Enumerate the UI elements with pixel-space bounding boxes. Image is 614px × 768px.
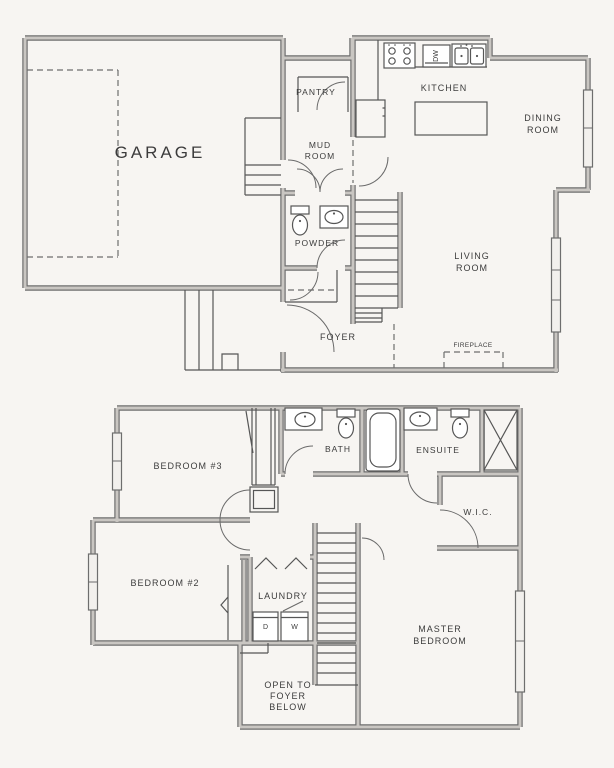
bedroom3-label: BEDROOM #3 bbox=[153, 461, 222, 471]
living-room-label-line2: ROOM bbox=[456, 263, 488, 273]
ensuite-fixtures bbox=[404, 408, 517, 470]
bedroom2-door-arc bbox=[220, 520, 250, 550]
mud-room-label-line1: MUD bbox=[309, 140, 331, 150]
master-bedroom-label-line1: MASTER bbox=[418, 624, 462, 634]
wic-label: W.I.C. bbox=[463, 507, 492, 517]
dishwasher-label: DW bbox=[433, 50, 440, 62]
linen-closet bbox=[250, 487, 278, 512]
floor-plan-canvas: GARAGE PANTRY KITCHEN DINING ROOM MUD RO… bbox=[0, 0, 614, 768]
ensuite-toilet-icon bbox=[451, 409, 469, 417]
pantry-label: PANTRY bbox=[296, 87, 336, 97]
open-to-foyer-label-line3: BELOW bbox=[269, 702, 307, 712]
foyer-closet-door-arc bbox=[290, 272, 318, 300]
bedroom3-door-arc bbox=[220, 490, 250, 520]
powder-toilet-icon bbox=[291, 206, 309, 214]
powder-sink-icon bbox=[320, 206, 348, 228]
open-to-foyer-label-line1: OPEN TO bbox=[264, 680, 311, 690]
bath-label: BATH bbox=[325, 444, 351, 454]
main-staircase-treads bbox=[355, 200, 398, 322]
refrigerator-icon bbox=[356, 100, 385, 137]
foyer-closet-walls bbox=[285, 270, 337, 302]
master-bedroom-label-line2: BEDROOM bbox=[413, 636, 467, 646]
kitchen-hall-door-arc bbox=[359, 157, 388, 186]
kitchen-label: KITCHEN bbox=[421, 83, 468, 93]
living-room-label-line1: LIVING bbox=[454, 251, 490, 261]
front-porch-steps bbox=[185, 290, 281, 370]
living-room-window bbox=[552, 238, 561, 332]
bath-fixtures bbox=[285, 408, 400, 471]
open-to-foyer-label-line2: FOYER bbox=[270, 691, 306, 701]
fireplace-label: FIREPLACE bbox=[453, 342, 492, 349]
powder-room-fixtures bbox=[291, 206, 348, 235]
mudroom-closet-door-left-arc bbox=[297, 169, 320, 192]
washer-label: W bbox=[291, 624, 298, 631]
ensuite-label: ENSUITE bbox=[416, 445, 460, 455]
ensuite-sink-counter bbox=[404, 408, 437, 430]
mud-room-label-line2: ROOM bbox=[305, 151, 335, 161]
shower-icon bbox=[484, 410, 517, 470]
main-floor-plan: GARAGE PANTRY KITCHEN DINING ROOM MUD RO… bbox=[25, 38, 593, 372]
master-door-arc bbox=[362, 538, 384, 560]
garage-label: GARAGE bbox=[115, 143, 206, 162]
garage-door-dashed-outline bbox=[27, 70, 118, 257]
bedroom2-label: BEDROOM #2 bbox=[130, 578, 199, 588]
upper-staircase-treads bbox=[240, 533, 358, 685]
dining-room-label-line1: DINING bbox=[524, 113, 562, 123]
bath-toilet-icon bbox=[337, 409, 355, 417]
laundry-label: LAUNDRY bbox=[258, 591, 308, 601]
floor-plan-drawing: GARAGE PANTRY KITCHEN DINING ROOM MUD RO… bbox=[0, 0, 614, 768]
mudroom-closet-door-right-arc bbox=[320, 169, 343, 192]
powder-label: POWDER bbox=[295, 238, 339, 248]
bedroom3-closet bbox=[246, 408, 275, 485]
bath-door-arc bbox=[285, 446, 313, 474]
stove-icon bbox=[384, 43, 415, 68]
kitchen-island bbox=[415, 102, 487, 135]
garage-steps bbox=[245, 118, 281, 195]
front-door-arc bbox=[287, 305, 334, 352]
foyer-label: FOYER bbox=[320, 332, 356, 342]
dining-room-label-line2: ROOM bbox=[527, 125, 559, 135]
laundry-bifold-doors bbox=[255, 558, 307, 569]
ensuite-door-arc bbox=[408, 474, 437, 503]
dryer-label: D bbox=[263, 624, 268, 631]
bedroom2-closet bbox=[221, 565, 228, 640]
upper-floor-plan: BEDROOM #3 BATH ENSUITE W.I.C. BEDROOM #… bbox=[89, 408, 525, 727]
main-floor-labels: GARAGE PANTRY KITCHEN DINING ROOM MUD RO… bbox=[115, 50, 562, 349]
